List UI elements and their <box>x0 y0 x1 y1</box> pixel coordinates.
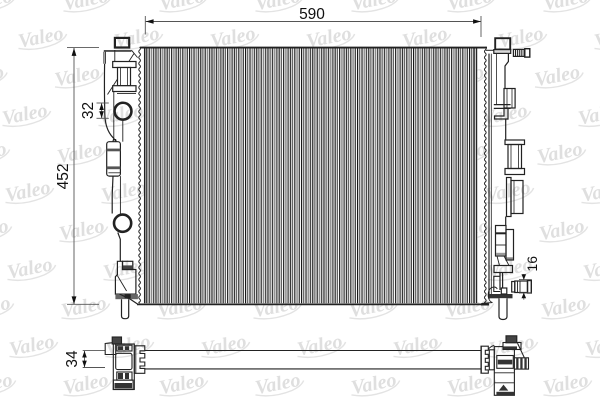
svg-text:34: 34 <box>64 350 81 368</box>
svg-text:590: 590 <box>299 6 325 23</box>
svg-text:32: 32 <box>80 102 97 119</box>
svg-text:16: 16 <box>524 256 540 272</box>
svg-text:452: 452 <box>55 163 72 189</box>
